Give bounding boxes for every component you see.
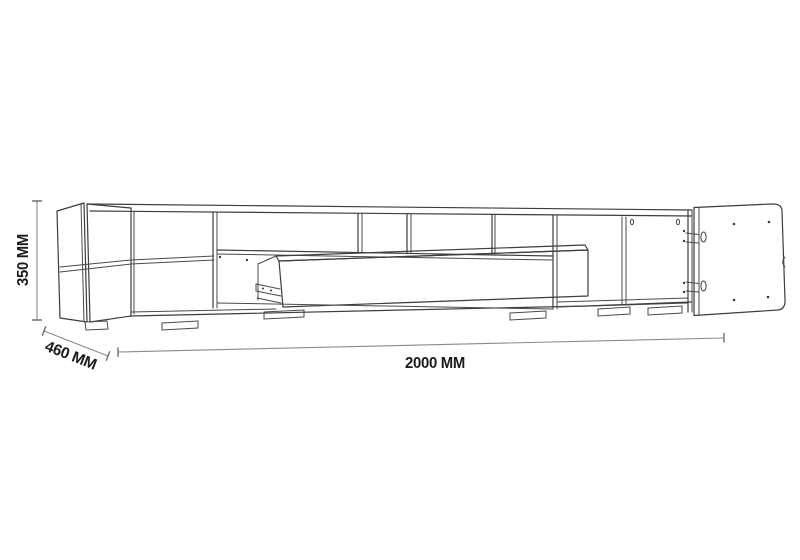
depth-dimension-label: 460 MM — [42, 338, 98, 374]
door-screw-dot — [733, 223, 736, 226]
hinge-screw-dot — [683, 291, 685, 293]
open-door — [686, 204, 785, 316]
shelf-pin-hole — [630, 219, 633, 224]
door-screw-dot — [768, 221, 771, 224]
hinge-cup — [701, 281, 706, 291]
width-dimension-label: 2000 MM — [405, 355, 465, 372]
open-drawer — [256, 245, 588, 307]
furniture-dimension-drawing: 350 MM 460 MM 2000 MM — [0, 0, 800, 560]
top-panel — [87, 204, 692, 216]
door-screw-dot — [767, 296, 770, 299]
bottom-panel — [131, 298, 692, 316]
shelf-pin-hole — [246, 259, 248, 261]
depth-dimension: 460 MM — [42, 327, 109, 374]
hinge-cup — [701, 232, 706, 242]
height-dimension-label: 350 MM — [15, 234, 32, 286]
hinge-screw-dot — [683, 240, 685, 242]
shelf-dividers — [134, 212, 557, 314]
right-cabinet — [622, 210, 692, 312]
height-dimension: 350 MM — [15, 201, 42, 320]
drawer-slide-rail — [256, 284, 281, 303]
left-end-panel — [57, 203, 214, 322]
furniture-outline — [57, 203, 785, 330]
feet — [85, 306, 682, 330]
hinge-screw-dot — [683, 230, 685, 232]
shelf-pin-hole — [219, 256, 221, 258]
technical-drawing-canvas: 350 MM 460 MM 2000 MM — [0, 0, 800, 560]
shelf-pin-hole — [676, 219, 679, 224]
door-screw-dot — [733, 299, 736, 302]
width-dimension: 2000 MM — [118, 334, 724, 373]
hinge-screw-dot — [683, 282, 685, 284]
